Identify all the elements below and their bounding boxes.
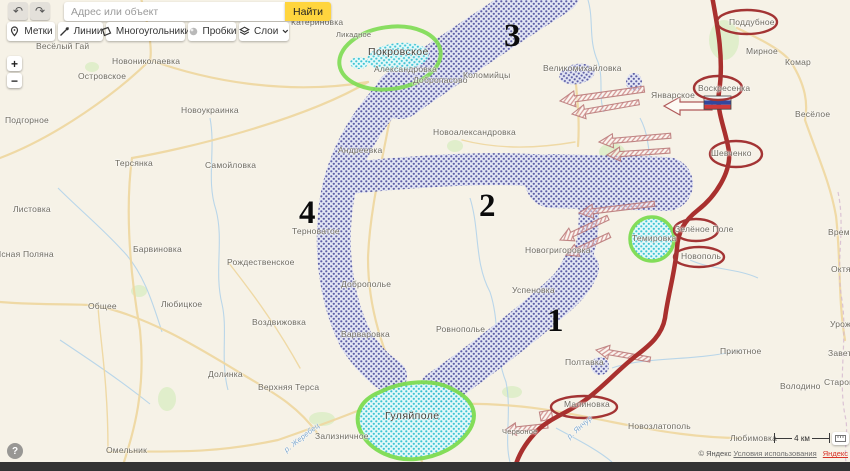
tool-label: Многоугольники	[116, 26, 190, 37]
search-input[interactable]	[64, 3, 285, 22]
undo-button[interactable]: ↶	[8, 2, 28, 20]
tool-layers-button[interactable]: Слои	[239, 22, 289, 41]
tool-traffic-button[interactable]: Пробки	[188, 22, 236, 41]
layers-icon	[239, 26, 250, 37]
copyright-text: © Яндекс	[698, 449, 731, 458]
zone-temirovka	[630, 217, 674, 261]
scale-label: 4 км	[794, 434, 810, 443]
yandex-maps-screenshot: Весёлый ГайКатериновкаЛикадноеНовоникола…	[0, 0, 850, 471]
search-box	[64, 2, 285, 21]
attribution: © Яндекс Условия использования Яндекс	[698, 449, 848, 458]
tool-polygons-button[interactable]: Многоугольники	[106, 22, 185, 41]
front-line	[516, 0, 729, 462]
map-canvas[interactable]: Весёлый ГайКатериновкаЛикадноеНовоникола…	[0, 0, 850, 462]
scale-bar: 4 км	[774, 433, 830, 443]
line-icon	[59, 26, 70, 37]
traffic-icon	[188, 26, 199, 37]
map-graphics	[0, 0, 850, 462]
search-button[interactable]: Найти	[285, 2, 331, 21]
tool-label: Линии	[74, 26, 103, 37]
ruler-button[interactable]	[832, 432, 849, 445]
tool-label: Пробки	[203, 26, 237, 37]
tool-lines-button[interactable]: Линии	[58, 22, 103, 41]
terms-link[interactable]: Условия использования	[733, 449, 816, 458]
zoom-out-button[interactable]: −	[7, 73, 22, 88]
ruler-icon	[835, 435, 846, 442]
tool-label: Слои	[254, 26, 278, 37]
tool-markers-button[interactable]: Метки	[7, 22, 55, 41]
redo-button[interactable]: ↷	[30, 2, 50, 20]
chevron-down-icon	[282, 29, 289, 34]
bottom-bar	[0, 462, 850, 471]
tool-label: Метки	[24, 26, 52, 37]
polygon-icon	[101, 26, 112, 37]
pin-icon	[9, 26, 20, 37]
zone-gulyaipole	[358, 382, 474, 459]
help-button[interactable]: ?	[7, 443, 23, 459]
zoom-in-button[interactable]: +	[7, 56, 22, 71]
yandex-logo[interactable]: Яндекс	[823, 449, 848, 458]
